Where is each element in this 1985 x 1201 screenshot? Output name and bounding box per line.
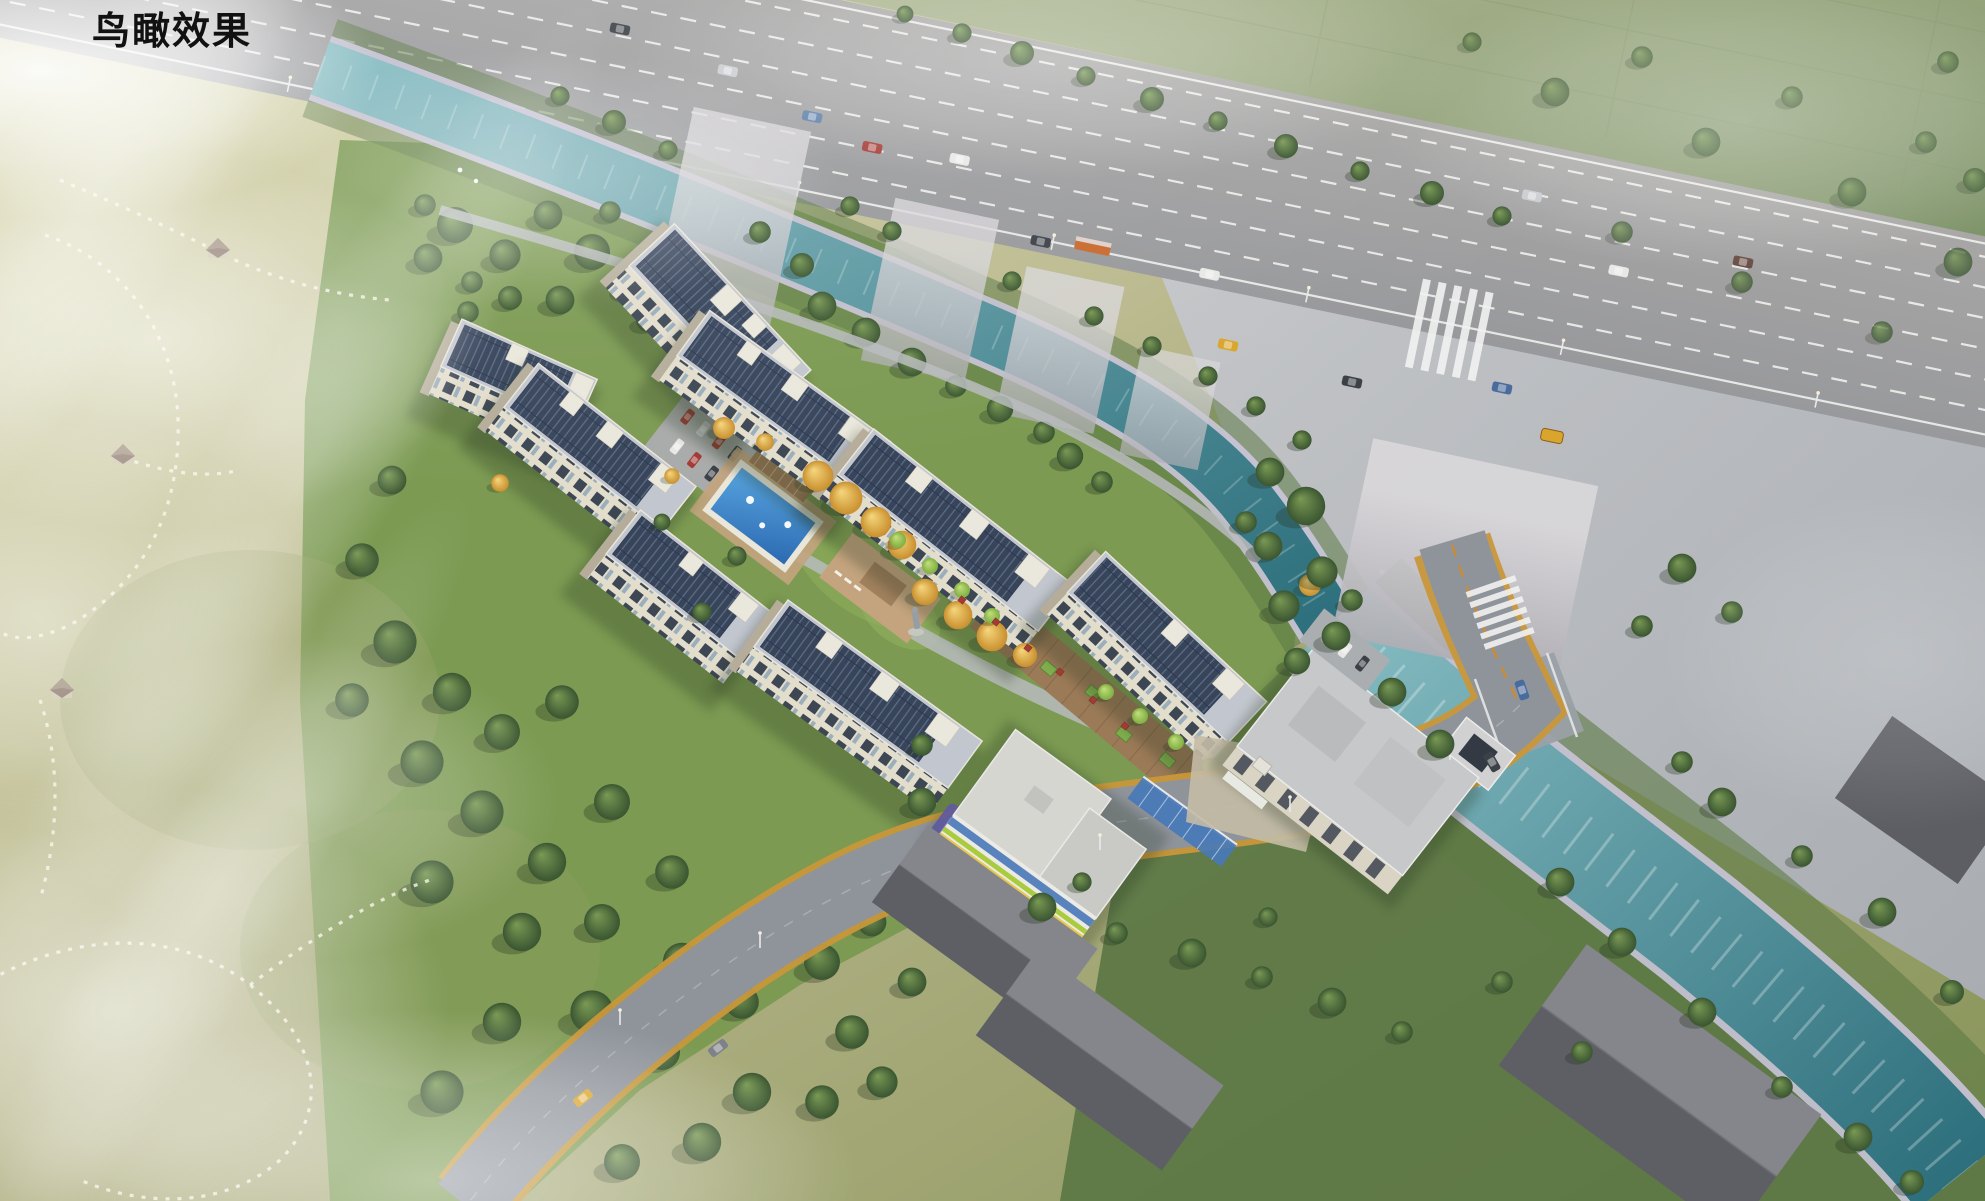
scene-svg [0, 0, 1985, 1201]
page-title: 鸟瞰效果 [92, 10, 252, 56]
aerial-rendering: 鸟瞰效果 [0, 0, 1985, 1201]
